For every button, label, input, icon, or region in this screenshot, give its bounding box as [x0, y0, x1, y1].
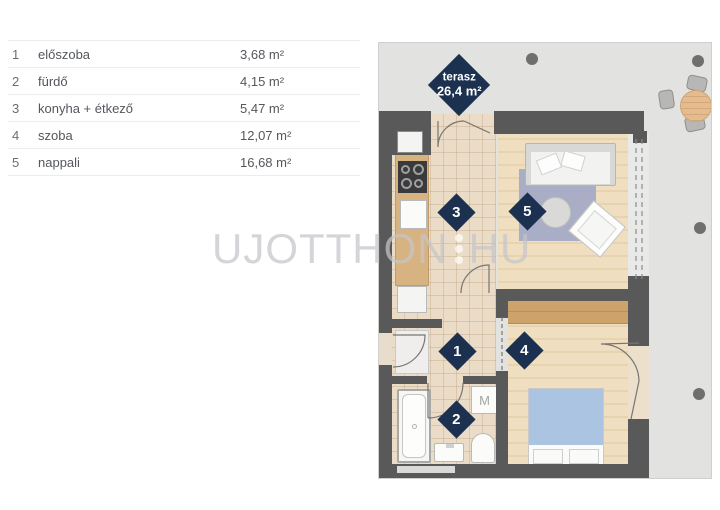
room-name: nappali — [38, 155, 240, 170]
bedroom-terrace-door-leaf — [631, 381, 639, 419]
room-name: szoba — [38, 128, 240, 143]
legend-row-1: 1 előszoba 3,68 m² — [8, 41, 360, 68]
marker-number: 5 — [523, 203, 531, 220]
terrace-title: terasz — [437, 71, 482, 84]
marker-number: 3 — [452, 204, 460, 221]
entrance-door-arc — [393, 335, 425, 367]
room-number: 1 — [8, 47, 38, 62]
watermark-separator-dots — [455, 234, 463, 264]
marker-number: 2 — [452, 411, 460, 428]
kitchen-terrace-door-leaf — [464, 121, 490, 133]
marker-number: 1 — [453, 343, 461, 360]
room-area: 3,68 m² — [240, 47, 360, 62]
kitchen-terrace-door-arc — [438, 121, 464, 147]
watermark-left: UJOTTHON — [212, 225, 449, 273]
room-name: előszoba — [38, 47, 240, 62]
legend-row-2: 2 fürdő 4,15 m² — [8, 68, 360, 95]
marker-number: 4 — [520, 342, 528, 359]
room-number: 5 — [8, 155, 38, 170]
room-area: 5,47 m² — [240, 101, 360, 116]
bedroom-terrace-door-arc — [601, 343, 639, 381]
room-legend-table: 1 előszoba 3,68 m² 2 fürdő 4,15 m² 3 kon… — [8, 40, 360, 176]
room-area: 12,07 m² — [240, 128, 360, 143]
room-number: 3 — [8, 101, 38, 116]
legend-row-3: 3 konyha + étkező 5,47 m² — [8, 95, 360, 122]
page: { "legend": { "rows": [ {"num": "1", "na… — [0, 0, 720, 510]
room-area: 4,15 m² — [240, 74, 360, 89]
watermark: UJOTTHON HU — [212, 224, 531, 274]
room-number: 2 — [8, 74, 38, 89]
room-name: fürdő — [38, 74, 240, 89]
legend-row-5: 5 nappali 16,68 m² — [8, 149, 360, 176]
room-area: 16,68 m² — [240, 155, 360, 170]
room-name: konyha + étkező — [38, 101, 240, 116]
legend-row-4: 4 szoba 12,07 m² — [8, 122, 360, 149]
watermark-right: HU — [469, 225, 532, 273]
room-number: 4 — [8, 128, 38, 143]
terrace-area-value: 26,4 m² — [437, 84, 482, 99]
living-window-dashed — [636, 139, 642, 281]
terrace-badge-text: terasz 26,4 m² — [437, 71, 482, 99]
